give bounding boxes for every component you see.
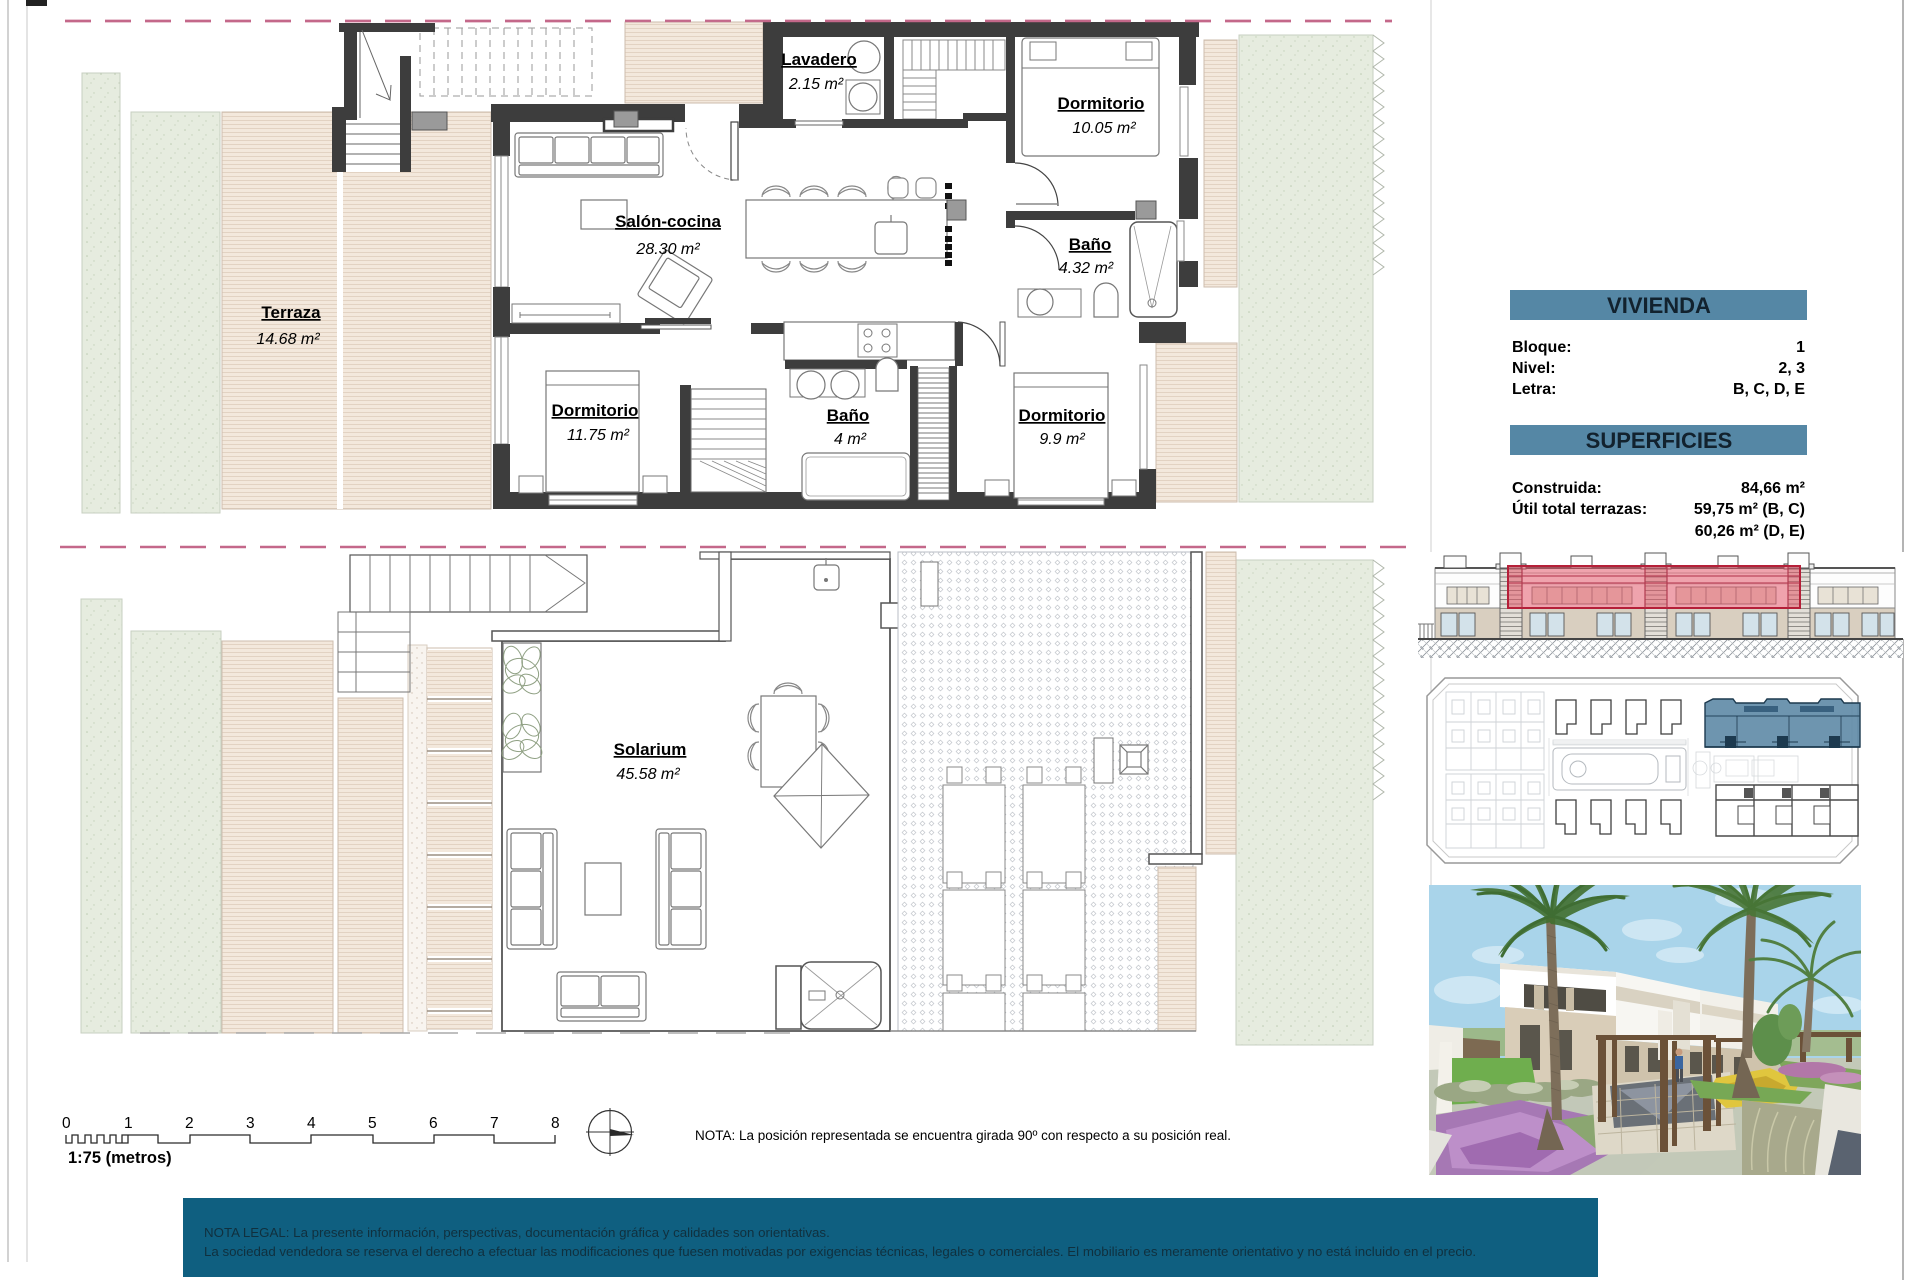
svg-text:28.30 m²: 28.30 m² (635, 241, 700, 258)
svg-text:3: 3 (246, 1115, 255, 1132)
svg-text:9.9 m²: 9.9 m² (1039, 431, 1085, 448)
svg-text:Terraza: Terraza (261, 303, 321, 322)
svg-text:0: 0 (62, 1115, 71, 1132)
svg-text:10.05 m²: 10.05 m² (1072, 120, 1136, 137)
svg-text:2, 3: 2, 3 (1778, 360, 1805, 377)
svg-text:4.32 m²: 4.32 m² (1059, 260, 1114, 277)
svg-text:1: 1 (1796, 339, 1805, 356)
svg-text:Baño: Baño (1069, 235, 1112, 254)
svg-text:NOTA LEGAL: La presente inform: NOTA LEGAL: La presente información, per… (204, 1225, 830, 1240)
svg-text:SUPERFICIES: SUPERFICIES (1586, 428, 1733, 453)
svg-text:Baño: Baño (827, 406, 870, 425)
svg-text:Salón-cocina: Salón-cocina (615, 212, 721, 231)
svg-text:8: 8 (551, 1115, 560, 1132)
svg-text:14.68 m²: 14.68 m² (256, 331, 320, 348)
svg-text:Nivel:: Nivel: (1512, 360, 1556, 377)
svg-text:Letra:: Letra: (1512, 381, 1556, 398)
svg-text:Lavadero: Lavadero (781, 50, 857, 69)
svg-text:2.15 m²: 2.15 m² (788, 76, 844, 93)
svg-text:Dormitorio: Dormitorio (1058, 94, 1145, 113)
svg-text:5: 5 (368, 1115, 377, 1132)
svg-text:Construida:: Construida: (1512, 480, 1602, 497)
svg-text:4: 4 (307, 1115, 316, 1132)
svg-text:84,66 m²: 84,66 m² (1741, 480, 1805, 497)
svg-text:59,75 m² (B, C): 59,75 m² (B, C) (1694, 501, 1805, 518)
svg-text:7: 7 (490, 1115, 499, 1132)
svg-text:1: 1 (124, 1115, 133, 1132)
svg-text:Solarium: Solarium (614, 740, 687, 759)
svg-text:1:75 (metros): 1:75 (metros) (68, 1149, 172, 1167)
svg-text:45.58 m²: 45.58 m² (616, 766, 680, 783)
svg-text:4 m²: 4 m² (834, 431, 867, 448)
svg-text:Dormitorio: Dormitorio (1019, 406, 1106, 425)
svg-text:2: 2 (185, 1115, 194, 1132)
svg-text:11.75 m²: 11.75 m² (567, 427, 630, 444)
svg-text:NOTA: La posición representada: NOTA: La posición representada se encuen… (695, 1128, 1231, 1143)
svg-text:VIVIENDA: VIVIENDA (1607, 293, 1711, 318)
svg-text:B, C, D, E: B, C, D, E (1733, 381, 1805, 398)
svg-text:Dormitorio: Dormitorio (552, 401, 639, 420)
svg-text:60,26 m² (D, E): 60,26 m² (D, E) (1695, 523, 1805, 540)
svg-text:La sociedad vendedora se reser: La sociedad vendedora se reserva el dere… (204, 1244, 1476, 1259)
svg-text:Bloque:: Bloque: (1512, 339, 1572, 356)
svg-text:6: 6 (429, 1115, 438, 1132)
svg-text:Útil total terrazas:: Útil total terrazas: (1512, 499, 1647, 518)
